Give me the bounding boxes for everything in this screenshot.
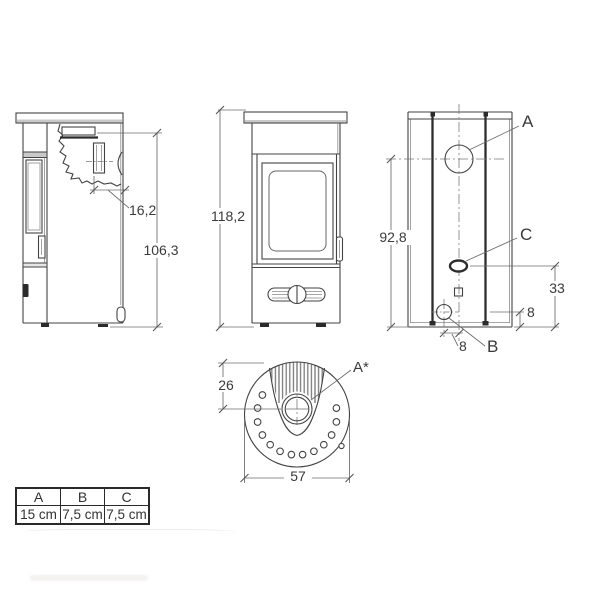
dim-text-57: 57 bbox=[290, 468, 306, 484]
legend-value-c: 7,5 cm bbox=[105, 506, 150, 525]
side-rear-foot bbox=[117, 307, 125, 322]
legend-header-b: B bbox=[61, 488, 105, 506]
dim-back-c-height: 33 bbox=[514, 262, 568, 331]
back-connection-c bbox=[450, 261, 467, 272]
side-latch bbox=[23, 284, 29, 297]
dim-top-diameter: 57 bbox=[241, 420, 354, 484]
top-view: A* 26 57 bbox=[215, 359, 369, 484]
legend-header-row: A B C bbox=[16, 488, 149, 506]
dim-text-106-3: 106,3 bbox=[143, 242, 178, 258]
label-c: C bbox=[520, 225, 532, 244]
legend-value-a: 15 cm bbox=[16, 506, 61, 525]
dim-text-26: 26 bbox=[218, 377, 234, 393]
legend-value-b: 7,5 cm bbox=[61, 506, 105, 525]
label-a-star: A* bbox=[353, 359, 369, 376]
back-small-square bbox=[455, 288, 463, 296]
dim-text-92-8: 92,8 bbox=[379, 229, 406, 245]
front-door-glass-frame bbox=[262, 163, 333, 259]
back-view: A C B 92,8 8 bbox=[376, 104, 568, 356]
label-a: A bbox=[522, 112, 534, 131]
faint-scan-artifact bbox=[22, 529, 236, 535]
dimension-legend-table: A B C 15 cm 7,5 cm 7,5 cm bbox=[15, 487, 150, 525]
dim-front-total-height: 118,2 bbox=[206, 106, 254, 331]
technical-drawing-page: 16,2 106,3 bbox=[0, 0, 600, 600]
dim-text-8-offset: 8 bbox=[459, 338, 467, 354]
side-view: 16,2 106,3 bbox=[16, 113, 182, 331]
dim-back-b-offset: 8 bbox=[440, 329, 467, 354]
faint-watermark-artifact bbox=[30, 575, 148, 581]
dim-text-8-height: 8 bbox=[527, 304, 535, 320]
legend-header-a: A bbox=[16, 488, 61, 506]
legend-value-row: 15 cm 7,5 cm 7,5 cm bbox=[16, 506, 149, 525]
dim-text-16-2: 16,2 bbox=[129, 202, 156, 218]
label-b: B bbox=[487, 337, 498, 356]
side-rear-flue-pipe bbox=[94, 143, 105, 173]
front-air-lever bbox=[268, 286, 325, 304]
side-top-flue-duct bbox=[62, 127, 95, 135]
dim-text-33: 33 bbox=[549, 280, 565, 296]
dim-back-outlet-height: 92,8 bbox=[376, 155, 411, 331]
dim-side-flue-height: 106,3 bbox=[97, 129, 182, 331]
legend-header-c: C bbox=[105, 488, 150, 506]
dim-text-118-2: 118,2 bbox=[211, 208, 245, 224]
dim-top-flue-center: 26 bbox=[215, 359, 281, 413]
front-view: 118,2 bbox=[206, 106, 347, 331]
